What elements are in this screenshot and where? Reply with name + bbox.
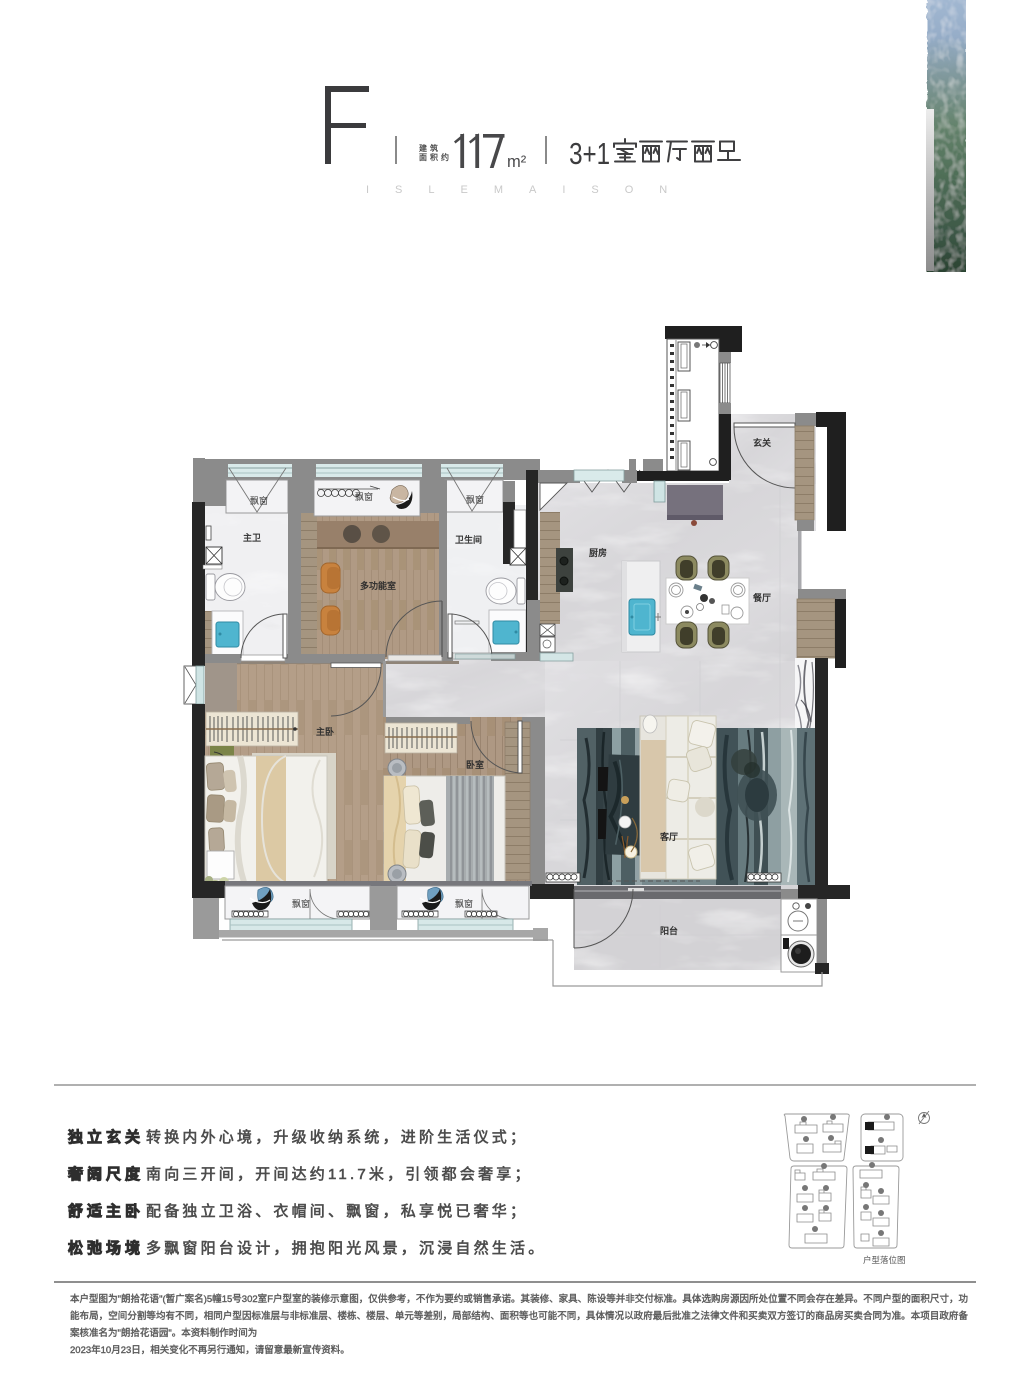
- svg-text:主卫: 主卫: [243, 532, 261, 543]
- svg-text:飘窗: 飘窗: [250, 495, 268, 506]
- svg-text:飘窗: 飘窗: [466, 494, 484, 505]
- svg-text:卫生间: 卫生间: [455, 534, 482, 545]
- svg-text:阳台: 阳台: [660, 925, 678, 936]
- svg-text:主卧: 主卧: [316, 726, 334, 737]
- svg-text:卧室: 卧室: [466, 759, 484, 770]
- svg-text:多功能室: 多功能室: [360, 580, 396, 591]
- svg-text:m²: m²: [507, 153, 527, 171]
- svg-text:客厅: 客厅: [660, 831, 678, 842]
- svg-text:户型落位图: 户型落位图: [863, 1255, 906, 1265]
- svg-text:飘窗: 飘窗: [455, 898, 473, 909]
- svg-text:3+1: 3+1: [569, 136, 610, 171]
- svg-text:餐厅: 餐厅: [753, 592, 771, 603]
- svg-text:厨房: 厨房: [589, 547, 607, 558]
- svg-text:飘窗: 飘窗: [355, 491, 373, 502]
- svg-text:玄关: 玄关: [753, 437, 771, 448]
- svg-text:飘窗: 飘窗: [292, 898, 310, 909]
